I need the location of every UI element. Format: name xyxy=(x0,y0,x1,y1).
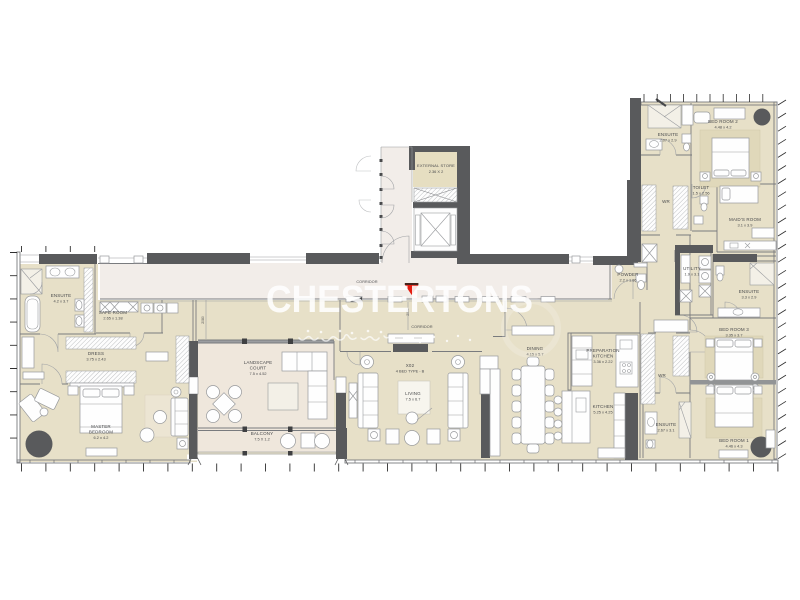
svg-text:WR: WR xyxy=(662,199,670,204)
svg-text:DRESS: DRESS xyxy=(88,351,104,356)
svg-text:EXTERNAL STORE: EXTERNAL STORE xyxy=(417,163,455,168)
svg-text:4.46 x 4.3: 4.46 x 4.3 xyxy=(725,443,742,448)
svg-text:BED ROOM 1: BED ROOM 1 xyxy=(719,438,749,443)
svg-text:3.75 x 2.43: 3.75 x 2.43 xyxy=(86,356,105,361)
svg-text:2.67 x 3.1: 2.67 x 3.1 xyxy=(657,427,674,432)
svg-text:1.5 x 2.56: 1.5 x 2.56 xyxy=(692,190,709,195)
svg-text:1.9 x 3.1: 1.9 x 3.1 xyxy=(685,271,700,276)
svg-text:ENSUITE: ENSUITE xyxy=(51,293,72,298)
svg-text:7.5 x 4.52: 7.5 x 4.52 xyxy=(249,371,266,376)
svg-text:2.07 x 2.9: 2.07 x 2.9 xyxy=(659,137,676,142)
svg-text:ENSUITE: ENSUITE xyxy=(656,422,677,427)
svg-text:PREPARATION: PREPARATION xyxy=(586,348,619,353)
svg-text:2080: 2080 xyxy=(201,316,205,324)
svg-text:KITCHEN: KITCHEN xyxy=(593,353,614,358)
svg-text:BED ROOM 2: BED ROOM 2 xyxy=(708,119,738,124)
svg-text:6.2 x 4.2: 6.2 x 4.2 xyxy=(94,435,109,440)
svg-text:7.5 x 6.7: 7.5 x 6.7 xyxy=(406,396,421,401)
svg-text:3.36 x 2.22: 3.36 x 2.22 xyxy=(593,359,612,364)
svg-text:KITCHEN: KITCHEN xyxy=(593,404,614,409)
svg-text:UTILITY: UTILITY xyxy=(683,266,701,271)
svg-text:4.48 x 4.2: 4.48 x 4.2 xyxy=(714,124,731,129)
svg-text:BED ROOM 3: BED ROOM 3 xyxy=(719,327,749,332)
svg-text:2.65 x 1.38: 2.65 x 1.38 xyxy=(103,315,122,320)
svg-text:ENSUITE: ENSUITE xyxy=(739,289,760,294)
svg-text:4 BED TYPE - B: 4 BED TYPE - B xyxy=(396,368,425,373)
svg-text:CORRIDOR: CORRIDOR xyxy=(411,325,432,329)
svg-text:2.2 x 1.86: 2.2 x 1.86 xyxy=(619,277,636,282)
svg-text:4.2 x 3.7: 4.2 x 3.7 xyxy=(54,298,69,303)
svg-text:MASTER: MASTER xyxy=(91,424,111,429)
svg-text:LANDSCAPE: LANDSCAPE xyxy=(244,360,273,365)
svg-text:TOILET: TOILET xyxy=(693,185,710,190)
svg-text:MAID'S ROOM: MAID'S ROOM xyxy=(729,217,761,222)
svg-text:ENSUITE: ENSUITE xyxy=(658,132,679,137)
svg-text:SAFE ROOM: SAFE ROOM xyxy=(99,310,127,315)
svg-text:3.1 x 3.9: 3.1 x 3.9 xyxy=(738,222,753,227)
svg-text:2.36 X 2: 2.36 X 2 xyxy=(429,169,444,174)
svg-text:3.35 x 3.7: 3.35 x 3.7 xyxy=(725,332,742,337)
svg-text:3.3 x 2.9: 3.3 x 2.9 xyxy=(742,294,757,299)
svg-text:LIVING: LIVING xyxy=(405,391,421,396)
svg-text:POWDER: POWDER xyxy=(617,272,639,277)
svg-text:COURT: COURT xyxy=(250,365,267,370)
svg-text:CHESTERTONS: CHESTERTONS xyxy=(266,279,533,321)
svg-text:WR: WR xyxy=(658,373,666,378)
svg-text:BALCONY: BALCONY xyxy=(251,431,274,436)
svg-text:5.25 x 4.25: 5.25 x 4.25 xyxy=(593,409,612,414)
svg-text:X02: X02 xyxy=(406,363,415,368)
svg-text:BEDROOM: BEDROOM xyxy=(89,429,113,434)
svg-text:7.5 X 1.2: 7.5 X 1.2 xyxy=(254,436,270,441)
